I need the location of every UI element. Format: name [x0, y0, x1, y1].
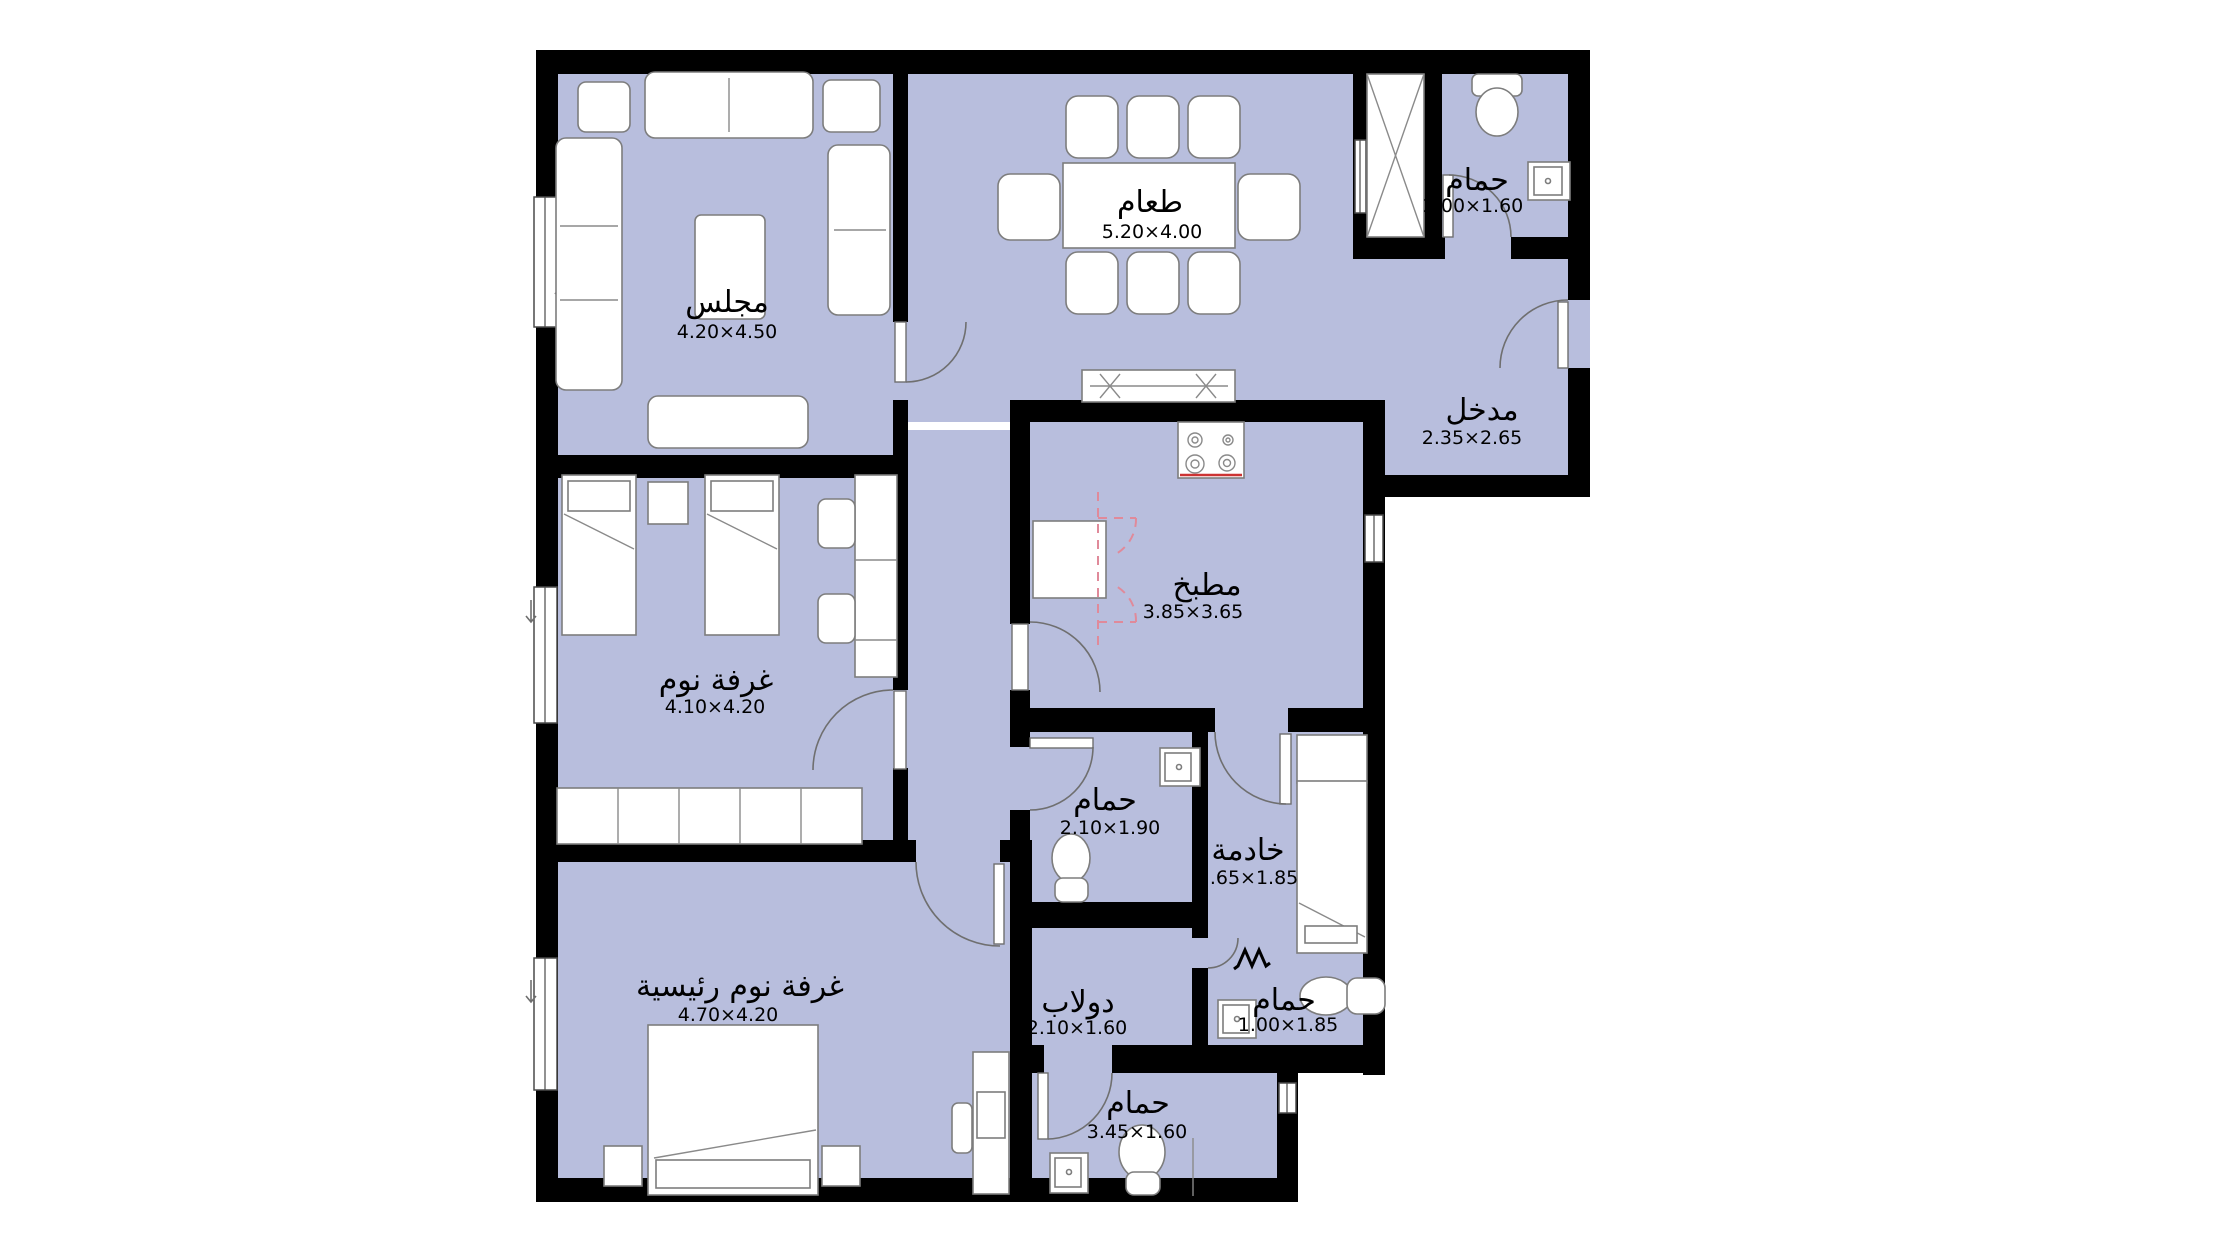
svg-text:حمام: حمام — [1445, 163, 1509, 198]
wall-segment — [1511, 237, 1590, 259]
window-dining-shaft — [1355, 140, 1366, 213]
single-bed — [1297, 735, 1367, 783]
svg-text:مدخل: مدخل — [1445, 393, 1518, 428]
armchair — [578, 82, 630, 132]
wall-segment — [1010, 902, 1208, 928]
entrance-floor — [1353, 237, 1590, 497]
room-label-majlis: مجلس 4.20×4.50 — [677, 285, 778, 343]
svg-text:مجلس: مجلس — [685, 285, 769, 320]
window-kitchen — [1365, 515, 1383, 562]
wall-segment — [1288, 708, 1385, 732]
toilet-base — [1347, 978, 1385, 1014]
svg-text:حمام: حمام — [1106, 1086, 1170, 1121]
room-label-maid: خادمة 2.65×1.85 — [1198, 833, 1299, 889]
nightstand — [648, 482, 688, 524]
svg-text:2.00×1.60: 2.00×1.60 — [1423, 195, 1524, 217]
wall-segment — [1568, 50, 1590, 497]
svg-text:4.70×4.20: 4.70×4.20 — [678, 1004, 779, 1026]
window-majlis — [534, 197, 557, 327]
sofa — [556, 138, 622, 390]
wall-segment — [1010, 400, 1385, 422]
window-master-bedroom — [534, 958, 557, 1090]
nightstand — [604, 1146, 642, 1186]
svg-text:3.45×1.60: 3.45×1.60 — [1087, 1121, 1188, 1143]
wall-segment — [893, 768, 908, 845]
svg-text:2.10×1.90: 2.10×1.90 — [1060, 817, 1161, 839]
wall-segment — [893, 50, 908, 322]
wall-segment — [1424, 50, 1442, 259]
svg-text:2.35×2.65: 2.35×2.65 — [1422, 427, 1523, 449]
armchair — [823, 80, 880, 132]
pillow — [711, 481, 773, 511]
shaft — [1367, 74, 1424, 237]
svg-text:4.10×4.20: 4.10×4.20 — [665, 696, 766, 718]
room-label-closet: دولاب 2.10×1.60 — [1027, 985, 1128, 1039]
svg-text:غرفة نوم: غرفة نوم — [659, 663, 774, 698]
nightstand — [822, 1146, 860, 1186]
svg-text:طعام: طعام — [1117, 185, 1183, 220]
sofa — [648, 396, 808, 448]
wall-segment — [893, 400, 908, 458]
dining-chair — [1188, 252, 1240, 314]
wall-segment — [1010, 732, 1030, 747]
wall-segment — [1112, 1045, 1277, 1073]
svg-text:خادمة: خادمة — [1211, 833, 1284, 868]
svg-text:2.10×1.60: 2.10×1.60 — [1027, 1017, 1128, 1039]
wardrobe — [557, 788, 862, 844]
pillow — [568, 481, 630, 511]
refrigerator — [1033, 521, 1106, 598]
bench — [952, 1103, 972, 1153]
toilet-base — [1126, 1172, 1160, 1195]
svg-text:حمام: حمام — [1252, 983, 1316, 1018]
desk-chair — [818, 594, 855, 643]
floor-plan-drawing: مجلس 4.20×4.50 طعام 5.20×4.00 حمام 2.00×… — [0, 0, 2240, 1260]
toilet-base — [1055, 878, 1088, 902]
svg-text:مطبخ: مطبخ — [1172, 568, 1241, 603]
wall-segment — [1010, 708, 1215, 732]
svg-text:غرفة نوم رئيسية: غرفة نوم رئيسية — [636, 969, 844, 1004]
dining-chair — [998, 174, 1060, 240]
svg-text:حمام: حمام — [1073, 783, 1137, 818]
wall-segment — [1032, 1045, 1044, 1073]
wall-segment — [1363, 475, 1590, 497]
dining-chair — [1127, 96, 1179, 158]
window-bath-bottom — [1279, 1083, 1296, 1113]
svg-text:دولاب: دولاب — [1041, 985, 1114, 1020]
floor-plan-canvas: مجلس 4.20×4.50 طعام 5.20×4.00 حمام 2.00×… — [0, 0, 2240, 1260]
toilet-bowl — [1476, 88, 1518, 136]
dining-chair — [1066, 252, 1118, 314]
wall-segment — [1010, 400, 1030, 624]
wall-segment — [1000, 840, 1032, 862]
window-bedroom — [534, 587, 557, 723]
dining-chair — [1127, 252, 1179, 314]
toilet — [1052, 834, 1090, 882]
desk — [855, 475, 897, 677]
dining-chair — [1066, 96, 1118, 158]
dining-chair — [1238, 174, 1300, 240]
pillow — [656, 1160, 810, 1188]
wall-segment — [1192, 968, 1208, 1045]
dining-chair — [1188, 96, 1240, 158]
svg-text:5.20×4.00: 5.20×4.00 — [1102, 221, 1203, 243]
room-label-bedroom: غرفة نوم 4.10×4.20 — [659, 663, 774, 718]
svg-text:1.00×1.85: 1.00×1.85 — [1238, 1014, 1339, 1036]
svg-text:4.20×4.50: 4.20×4.50 — [677, 321, 778, 343]
desk-chair — [818, 499, 855, 548]
bed-foot — [1305, 926, 1357, 943]
svg-text:3.85×3.65: 3.85×3.65 — [1143, 601, 1244, 623]
svg-text:2.65×1.85: 2.65×1.85 — [1198, 867, 1299, 889]
